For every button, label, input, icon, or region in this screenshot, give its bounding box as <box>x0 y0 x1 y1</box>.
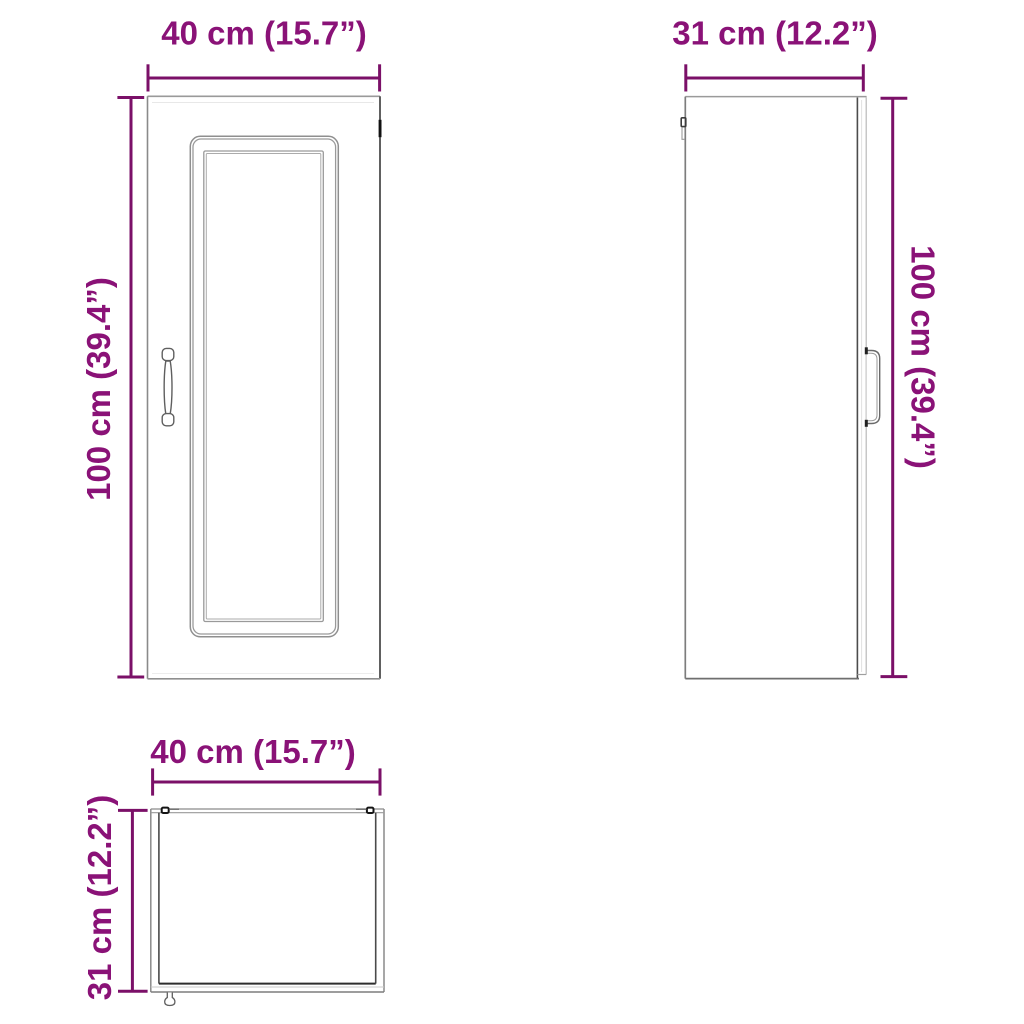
svg-text:31 cm (12.2”): 31 cm (12.2”) <box>81 795 118 1000</box>
svg-text:100 cm (39.4”): 100 cm (39.4”) <box>905 245 942 469</box>
svg-text:40 cm (15.7”): 40 cm (15.7”) <box>150 733 355 770</box>
svg-text:40 cm (15.7”): 40 cm (15.7”) <box>161 15 366 52</box>
svg-text:100 cm (39.4”): 100 cm (39.4”) <box>80 277 117 501</box>
svg-text:31 cm (12.2”): 31 cm (12.2”) <box>672 15 877 52</box>
